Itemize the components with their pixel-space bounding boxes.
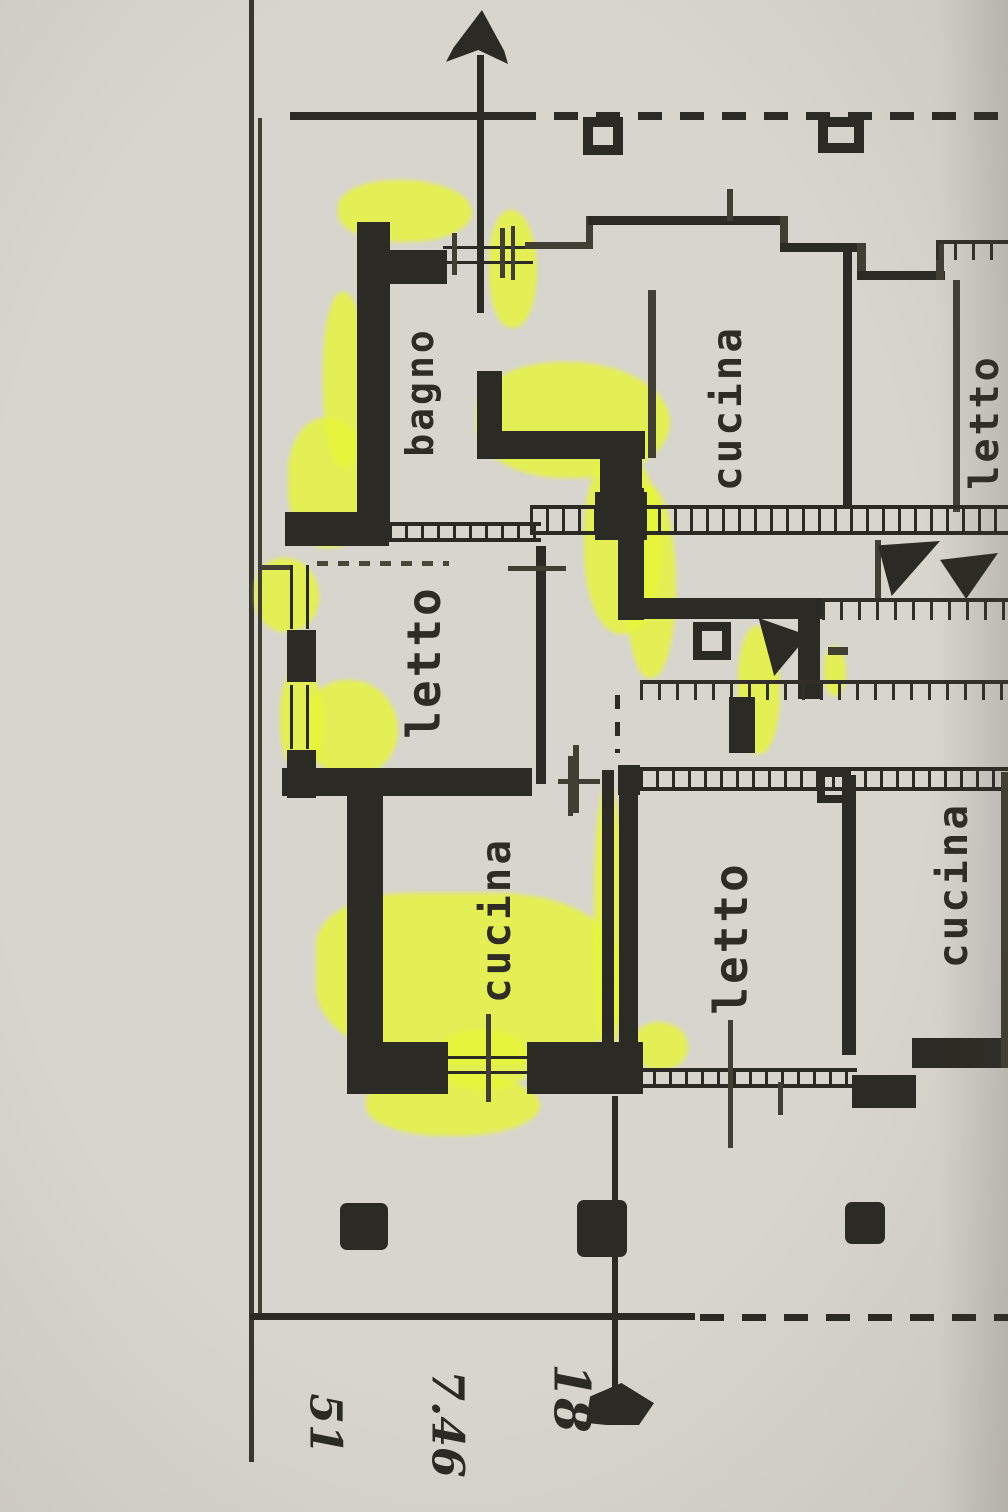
wall-bagno-left (357, 222, 390, 522)
room-label-cucina-left: cucina (472, 837, 520, 1003)
wall-cucina-right-thin (602, 770, 614, 1055)
wall-step-h3 (857, 271, 945, 280)
plan-left-border (258, 118, 262, 1320)
wall-letto-left-pier (287, 630, 316, 682)
north-arrow-stem (477, 55, 484, 313)
letto-dashed-line (317, 561, 449, 566)
wall-letto-top-hatched (389, 522, 541, 542)
wall-letto-lower-bottom (637, 1068, 857, 1088)
room-label-bagno-left: bagno (398, 327, 442, 456)
window-tick (452, 233, 457, 275)
wall-step-h1 (588, 216, 788, 225)
wall-letto-lower-left (619, 772, 638, 1084)
balcony-post-mark-1 (583, 117, 623, 155)
balcony-post-mark-2 (818, 117, 864, 153)
wall-hall-horizontal (477, 431, 645, 459)
window-center-tick (486, 1014, 491, 1102)
pillar-3 (845, 1202, 885, 1244)
floor-plan-photo: bagno letto cucina cucina letto letto cu… (0, 0, 1008, 1512)
dimension-line (728, 1020, 733, 1148)
stair-dashed-vertical (615, 695, 620, 753)
wall-stair-thin (648, 290, 656, 458)
wall-letto-bottom (282, 768, 532, 796)
wall-step-block (852, 1075, 916, 1108)
wall-bagno-top-stub (390, 250, 447, 284)
pillar-1 (340, 1203, 388, 1250)
window-tick (511, 226, 515, 280)
room-label-letto-left: letto (397, 585, 451, 738)
door-tick (508, 566, 566, 571)
window-letto-left-2 (290, 685, 309, 749)
photo-shadow-right (938, 0, 1008, 1512)
handwritten-number-51: 51 (300, 1393, 351, 1454)
wall-cucina-bottom-a (347, 1042, 448, 1094)
wall-step-tick (727, 189, 733, 221)
door-swing-1 (878, 541, 940, 596)
dimension-tick (262, 565, 290, 570)
wall-step-leadin (525, 242, 591, 249)
window-tick (500, 228, 505, 278)
window-letto-left-1 (290, 565, 309, 629)
wall-letto-top-block (285, 512, 389, 546)
wall-letto-cucina-divider (842, 775, 856, 1055)
wall-stair-stub (729, 697, 755, 753)
dimension-tick (568, 756, 573, 816)
pillar-2 (577, 1200, 627, 1257)
wall-cucina-ur-right (843, 252, 852, 508)
room-label-cucina-upper-right: cucina (703, 325, 751, 491)
sheet-edge-line (249, 0, 254, 1462)
wall-step-h2 (780, 243, 866, 252)
handwritten-number-18: 18 (543, 1363, 602, 1433)
dimension-tick (558, 779, 600, 784)
handwritten-number-746: 7.46 (422, 1370, 473, 1477)
dimension-tick (778, 1082, 783, 1115)
highlight-blob (306, 680, 398, 776)
small-dash (828, 647, 848, 655)
wall-hall-vertical-up (477, 371, 502, 435)
wall-letto-right-thin (536, 546, 546, 784)
wall-corridor (620, 598, 822, 619)
duct-square (693, 622, 731, 660)
boundary-line-bottom (250, 1313, 695, 1320)
room-label-letto-lower: letto (704, 861, 758, 1014)
wall-band-thick-left (595, 492, 647, 540)
